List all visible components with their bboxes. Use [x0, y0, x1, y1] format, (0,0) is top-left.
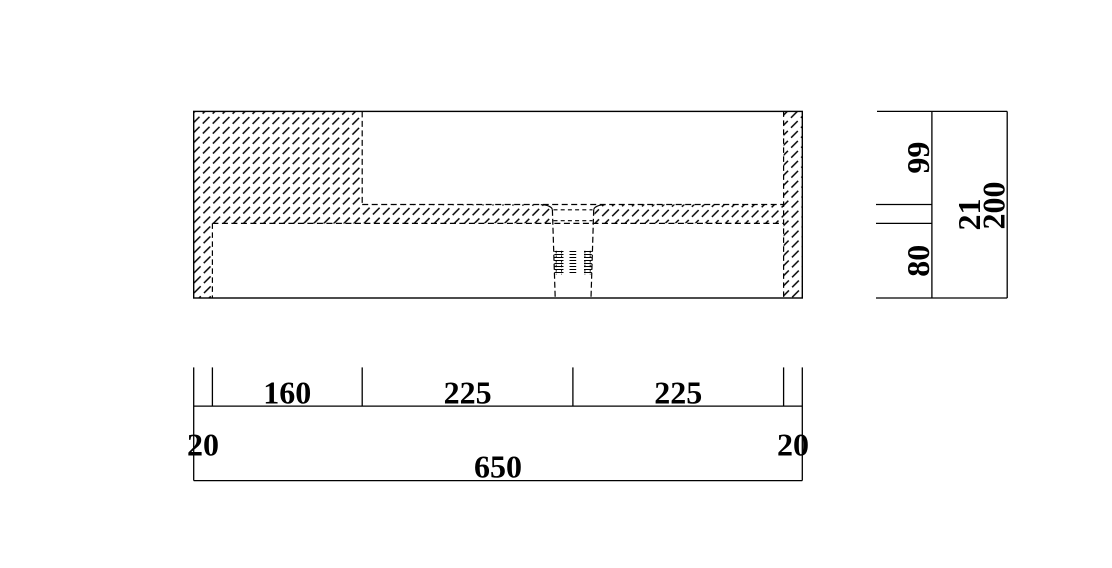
svg-text:99: 99: [900, 142, 936, 174]
svg-text:80: 80: [900, 245, 936, 277]
svg-text:160: 160: [263, 375, 311, 411]
svg-text:225: 225: [654, 375, 702, 411]
svg-text:20: 20: [777, 427, 809, 463]
svg-text:20: 20: [187, 427, 219, 463]
svg-text:225: 225: [444, 375, 492, 411]
svg-text:650: 650: [474, 448, 522, 484]
svg-text:200: 200: [976, 182, 1012, 230]
